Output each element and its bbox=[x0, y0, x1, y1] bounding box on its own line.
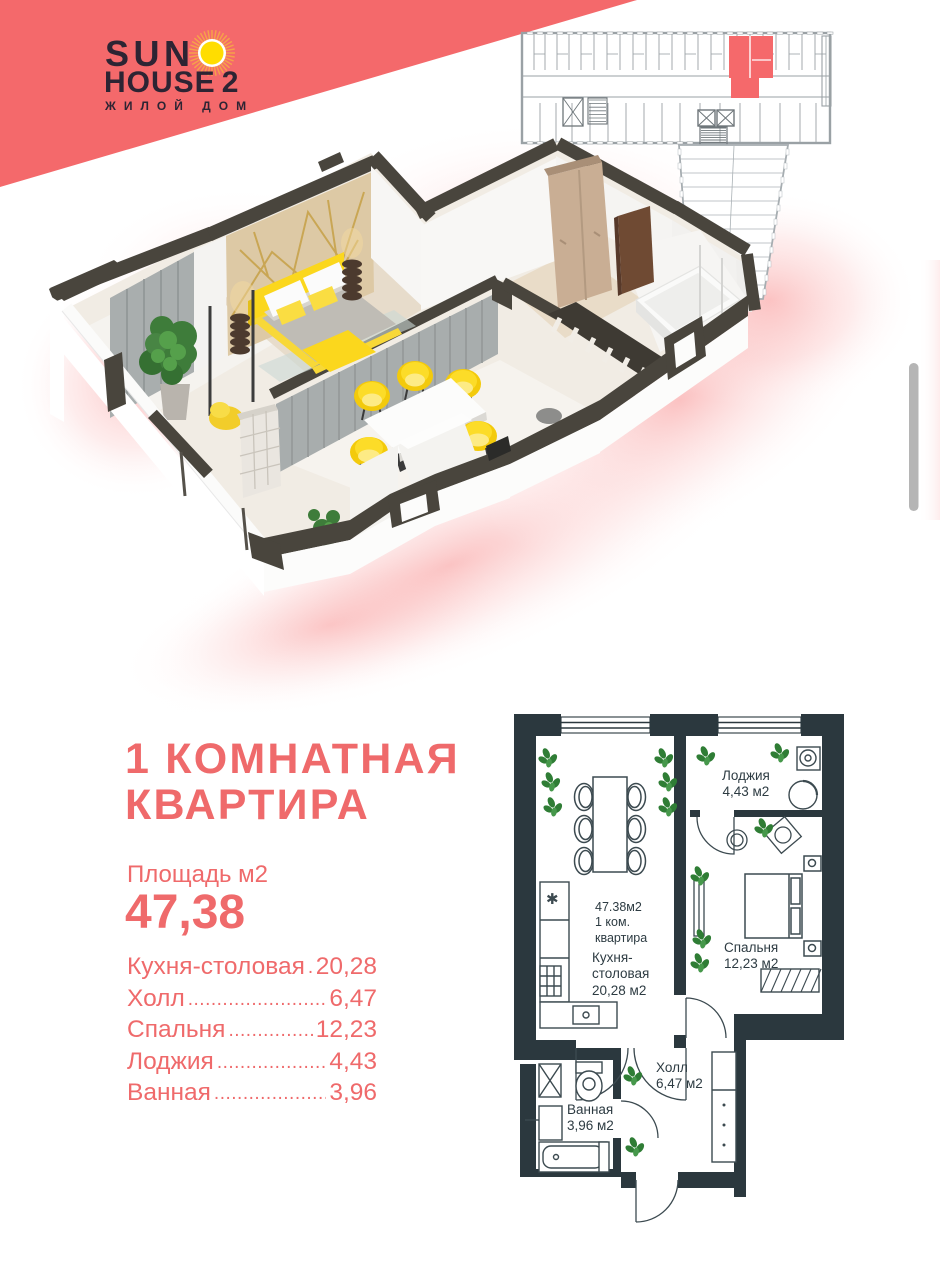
svg-text:✱: ✱ bbox=[546, 891, 559, 908]
